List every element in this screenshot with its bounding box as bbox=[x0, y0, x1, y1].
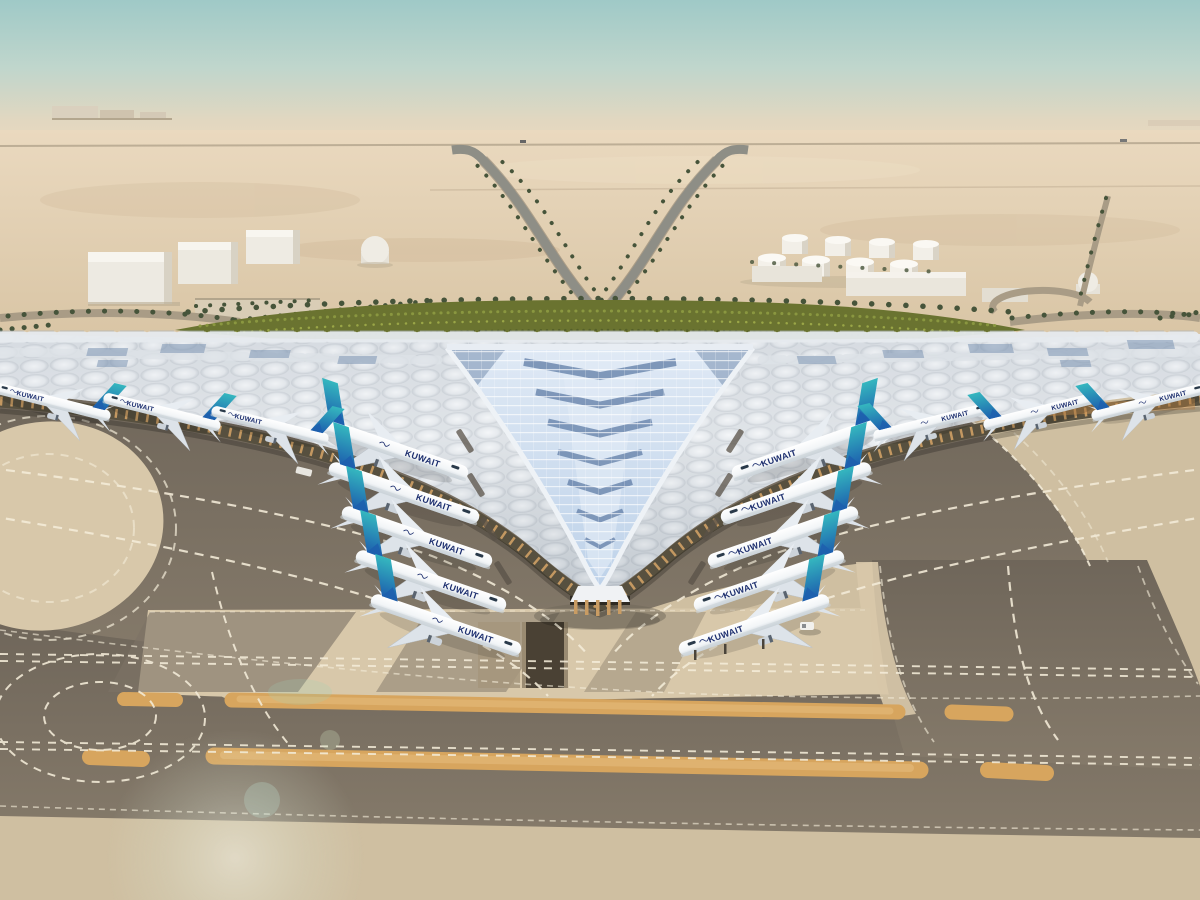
sky bbox=[0, 0, 1200, 152]
vertical-taxiway bbox=[872, 560, 1200, 770]
distant-vehicle bbox=[520, 140, 526, 143]
canopy-top-band bbox=[447, 344, 753, 350]
rendering-canvas: KUWAIT KUWAIT bbox=[0, 0, 1200, 900]
warehouse bbox=[88, 252, 180, 306]
airport-aerial-rendering: KUWAIT KUWAIT bbox=[0, 0, 1200, 900]
warehouse bbox=[246, 230, 300, 264]
warehouse bbox=[178, 242, 238, 284]
distant-vehicle bbox=[1120, 139, 1127, 142]
